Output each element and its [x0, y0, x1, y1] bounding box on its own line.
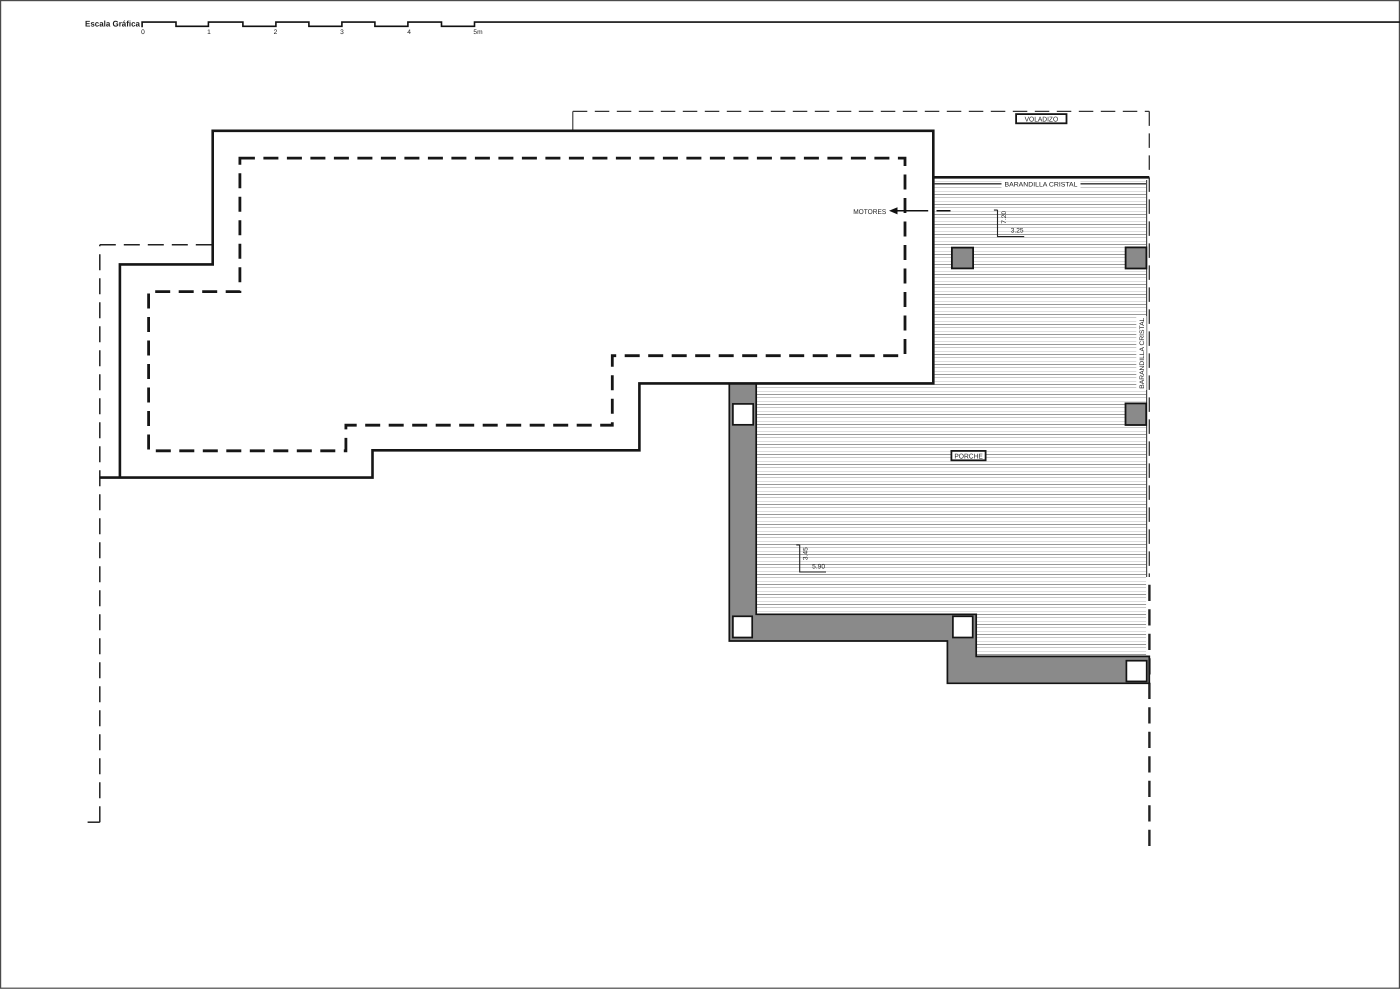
svg-text:3.25: 3.25 — [1011, 227, 1024, 234]
svg-text:MOTORES: MOTORES — [853, 209, 886, 216]
svg-text:5.90: 5.90 — [812, 563, 825, 570]
svg-text:1: 1 — [207, 29, 211, 36]
svg-text:7.20: 7.20 — [1001, 211, 1008, 224]
svg-text:3.45: 3.45 — [802, 547, 809, 560]
svg-text:PORCHE: PORCHE — [954, 454, 983, 461]
svg-text:3: 3 — [340, 29, 344, 36]
svg-text:BARANDILLA CRISTAL: BARANDILLA CRISTAL — [1139, 317, 1146, 388]
svg-text:Escala Gráfica: Escala Gráfica — [85, 19, 140, 28]
svg-text:0: 0 — [141, 29, 145, 36]
svg-text:VOLADIZO: VOLADIZO — [1025, 117, 1059, 124]
svg-text:4: 4 — [407, 29, 411, 36]
svg-text:BARANDILLA CRISTAL: BARANDILLA CRISTAL — [1005, 181, 1078, 188]
svg-text:5m: 5m — [473, 29, 483, 36]
svg-text:2: 2 — [274, 29, 278, 36]
